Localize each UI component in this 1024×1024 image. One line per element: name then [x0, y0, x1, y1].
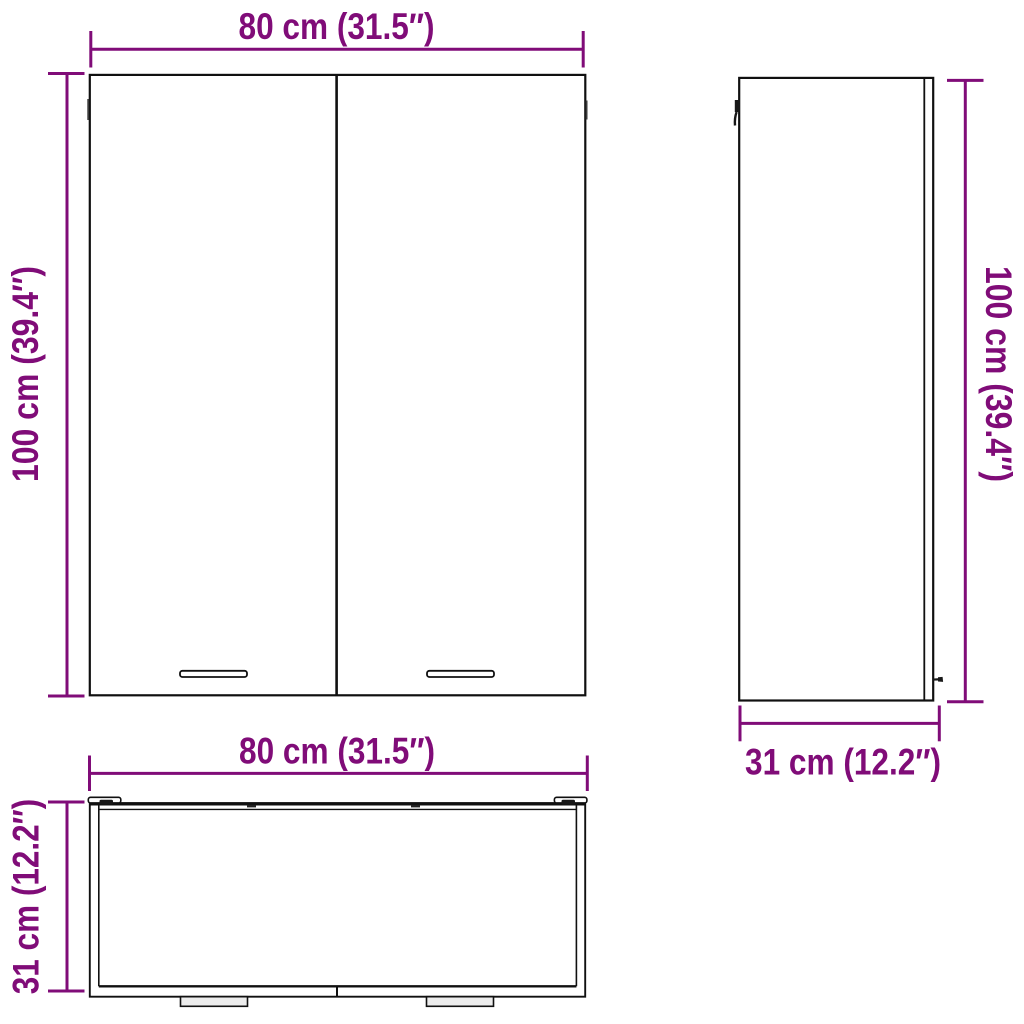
svg-text:80 cm (31.5″): 80 cm (31.5″)	[239, 6, 435, 47]
svg-text:31 cm (12.2″): 31 cm (12.2″)	[6, 799, 47, 995]
svg-text:100 cm (39.4″): 100 cm (39.4″)	[978, 266, 1019, 482]
svg-text:31 cm (12.2″): 31 cm (12.2″)	[745, 741, 941, 782]
svg-text:100 cm (39.4″): 100 cm (39.4″)	[5, 266, 46, 482]
svg-text:80 cm (31.5″): 80 cm (31.5″)	[239, 730, 435, 771]
